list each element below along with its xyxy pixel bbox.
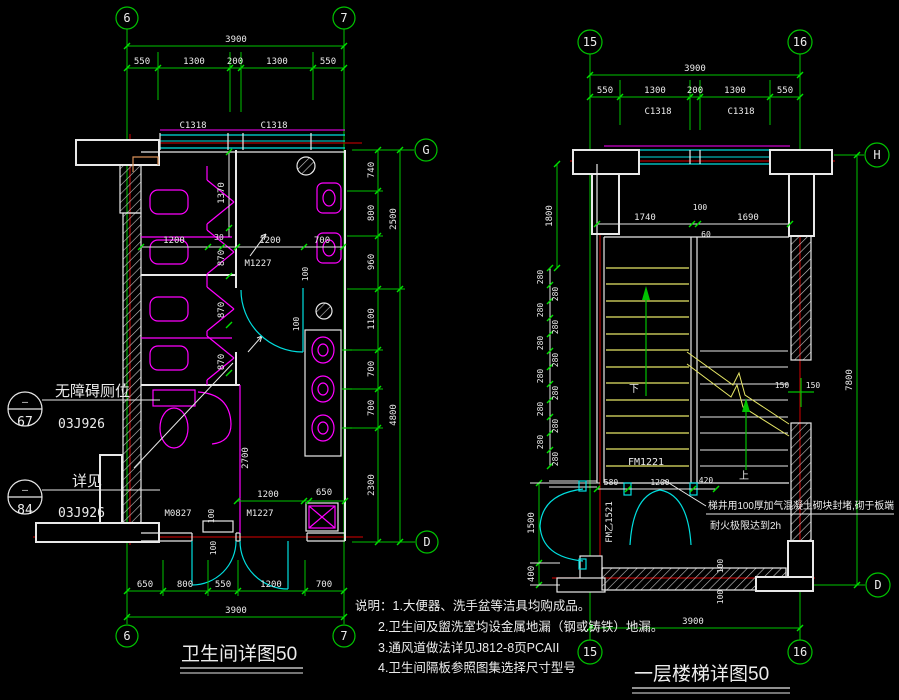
grid-bubble-15-bottom: 15 (578, 640, 602, 664)
dim-label: 60 (701, 230, 711, 239)
dim-label: 1200 (163, 236, 185, 246)
dim-label: 280 (536, 435, 545, 450)
grid-bubble-16-bottom: 16 (788, 640, 812, 664)
direction-up-label: 上 (739, 470, 749, 482)
dim-label: 100 (207, 509, 216, 524)
bathroom-plan: 6 7 6 7 G D 3900 550 1300 200 1300 550 C… (8, 7, 438, 673)
annotation-label: 详见 (72, 473, 102, 490)
dim-chain-right: 740 800 960 1100 700 700 2300 2500 4800 (347, 147, 405, 545)
dim-label: 550 (215, 580, 231, 590)
dim-label: 1200 (257, 490, 279, 500)
washroom-fixtures (248, 157, 352, 531)
window-tag: C1318 (179, 121, 206, 131)
dim-label: 2700 (241, 447, 251, 469)
annotation-label: 无障碍厕位 (55, 382, 130, 400)
grid-bubble-G: G (415, 139, 437, 161)
grid-label: 15 (583, 645, 597, 659)
stair-doors: FM乙1521 (540, 481, 697, 569)
dim-label: 280 (551, 320, 560, 335)
dim-label: 3900 (684, 64, 706, 74)
accessible-toilet (134, 363, 233, 468)
dim-chain-left: 1800 280 280 280 280 280 280 280 280 280… (527, 161, 600, 588)
note-line: 梯井用100厚加气混凝土砌块封堵,砌于板端 (708, 499, 894, 512)
dim-label: 200 (687, 86, 703, 96)
grid-label: 6 (123, 629, 130, 643)
grid-bubble-15-top: 15 (578, 30, 602, 54)
dim-7800: 7800 (845, 152, 860, 588)
grid-label: G (422, 143, 429, 157)
stair-flights: 下 上 FM1221 (606, 237, 789, 483)
dim-label: 100 (292, 317, 301, 332)
dim-label: 100 (209, 541, 218, 556)
grid-label: 16 (793, 645, 807, 659)
grid-bubble-7-bottom: 7 (333, 625, 355, 647)
dim-label: 100 (716, 559, 725, 574)
dim-label: 1200 (259, 236, 281, 246)
cad-canvas: 6 7 6 7 G D 3900 550 1300 200 1300 550 C… (0, 0, 899, 700)
dim-label: 700 (316, 580, 332, 590)
note-line-1: 说明：1.大便器、洗手盆等洁具均购成品。 (355, 598, 590, 613)
window-tag: C1318 (644, 107, 671, 117)
dim-label: 1300 (644, 86, 666, 96)
detail-number: 67 (17, 415, 33, 430)
window-tag: C1318 (727, 107, 754, 117)
dim-label: 2300 (367, 474, 377, 496)
stair-plan: 15 16 15 16 H D 3900 550 1300 200 1300 5… (527, 30, 894, 693)
dim-label: 200 (227, 57, 243, 67)
dim-label: 420 (699, 476, 714, 485)
dim-label: 4800 (389, 404, 399, 426)
dim-chain-bottom: 650 800 550 1200 700 3900 (124, 560, 347, 620)
dim-label: 280 (536, 369, 545, 384)
dim-label: 3900 (225, 35, 247, 45)
door-tag: FM1221 (628, 457, 664, 468)
window-tag: C1318 (260, 121, 287, 131)
dim-label: 870 (217, 302, 227, 318)
dim-label: 550 (134, 57, 150, 67)
dim-label: 280 (536, 270, 545, 285)
dim-label: 3900 (682, 617, 704, 627)
note-line-2: 2.卫生间及盥洗室均设金属地漏（钢或铸铁）地漏。 (378, 619, 663, 634)
cad-viewport: 6 7 6 7 G D 3900 550 1300 200 1300 550 C… (0, 0, 899, 700)
dim-label: 100 (301, 267, 310, 282)
grid-bubble-D-left: D (416, 531, 438, 553)
dim-label: 800 (177, 580, 193, 590)
grid-bubble-6-bottom: 6 (116, 625, 138, 647)
dim-label: 400 (527, 566, 537, 582)
dim-chain-top: 3900 550 1300 200 1300 550 (587, 64, 803, 130)
dim-chain-top: 3900 550 1300 200 1300 550 (124, 35, 347, 112)
dim-label: 1740 (634, 213, 656, 223)
dim-label: 280 (551, 386, 560, 401)
dim-label: 700 (367, 400, 377, 416)
dim-label: 280 (551, 287, 560, 302)
dim-label: 30 (214, 233, 224, 242)
door-tag: M1227 (246, 509, 273, 519)
door-tag: M1227 (244, 259, 271, 269)
dim-label: 1200 (650, 478, 669, 487)
dim-label: 280 (551, 452, 560, 467)
dim-label: 280 (536, 402, 545, 417)
dim-label: 1300 (724, 86, 746, 96)
grid-label: 7 (340, 11, 347, 25)
dim-label: 150 (775, 381, 790, 390)
dim-label: 7800 (845, 369, 855, 391)
grid-label: D (874, 578, 881, 592)
general-notes: 说明：1.大便器、洗手盆等洁具均购成品。 2.卫生间及盥洗室均设金属地漏（钢或铸… (355, 598, 663, 675)
dim-label: 1200 (260, 580, 282, 590)
dim-label: 960 (367, 254, 377, 270)
dim-label: 580 (604, 478, 619, 487)
dim-label: 1690 (737, 213, 759, 223)
detail-mark: — (22, 485, 29, 496)
dim-label: 1370 (217, 182, 227, 204)
dim-label: 650 (316, 488, 332, 498)
dim-label: 700 (367, 361, 377, 377)
dim-label: 2500 (389, 208, 399, 230)
door-tag: FM乙1521 (604, 501, 615, 543)
bathroom-title: 卫生间详图50 (180, 643, 303, 673)
grid-bubble-6-top: 6 (116, 7, 138, 29)
note-line-4: 4.卫生间隔板参照图集选择尺寸型号 (378, 660, 576, 675)
drawing-title: 卫生间详图50 (181, 643, 297, 665)
dim-label: 1800 (545, 205, 555, 227)
dim-label: 150 (806, 381, 821, 390)
dim-label: 1100 (367, 308, 377, 330)
dim-label: 870 (217, 250, 227, 266)
shaft-note: 梯井用100厚加气混凝土砌块封堵,砌于板端 耐火极限达到2h (664, 480, 894, 532)
interior-dims: 1200 30 1200 700 1370 870 870 870 2700 1… (138, 149, 348, 555)
note-line: 耐火极限达到2h (710, 519, 781, 532)
dim-label: 1300 (183, 57, 205, 67)
dim-label: 100 (716, 590, 725, 605)
grid-label: 7 (340, 629, 347, 643)
dim-label: 1500 (527, 512, 537, 534)
stair-title: 一层楼梯详图50 (632, 663, 790, 693)
dim-label: 280 (551, 419, 560, 434)
door-tag: M0827 (164, 509, 191, 519)
drawing-title: 一层楼梯详图50 (634, 663, 769, 685)
dim-label: 800 (367, 205, 377, 221)
dim-label: 740 (367, 162, 377, 178)
grid-lines (590, 54, 865, 640)
grid-label: D (423, 535, 430, 549)
window-band: C1318 C1318 (160, 121, 345, 150)
grid-label: 16 (793, 35, 807, 49)
reference-code: 03J926 (58, 417, 105, 432)
detail-number: 84 (17, 503, 33, 518)
dim-label: 650 (137, 580, 153, 590)
dim-label: 550 (320, 57, 336, 67)
dim-label: 280 (536, 303, 545, 318)
dim-label: 700 (314, 236, 330, 246)
grid-bubble-16-top: 16 (788, 30, 812, 54)
grid-bubble-H: H (865, 143, 889, 167)
note-line-3: 3.通风道做法详见J812-8页PCAII (378, 640, 559, 655)
grid-bubble-D-right: D (866, 573, 890, 597)
dim-label: 100 (693, 203, 708, 212)
grid-label: 15 (583, 35, 597, 49)
dim-label: 1300 (266, 57, 288, 67)
grid-label: 6 (123, 11, 130, 25)
dim-label: 870 (217, 354, 227, 370)
direction-down-label: 下 (629, 384, 639, 395)
dim-label: 3900 (225, 606, 247, 616)
reference-code: 03J926 (58, 506, 105, 521)
dim-label: 280 (536, 336, 545, 351)
dim-label: 550 (777, 86, 793, 96)
dim-landing: 1740 100 60 1690 (594, 203, 793, 239)
dim-label: 280 (551, 353, 560, 368)
grid-label: H (873, 148, 880, 162)
dim-label: 550 (597, 86, 613, 96)
grid-bubble-7-top: 7 (333, 7, 355, 29)
detail-mark: — (22, 397, 29, 408)
